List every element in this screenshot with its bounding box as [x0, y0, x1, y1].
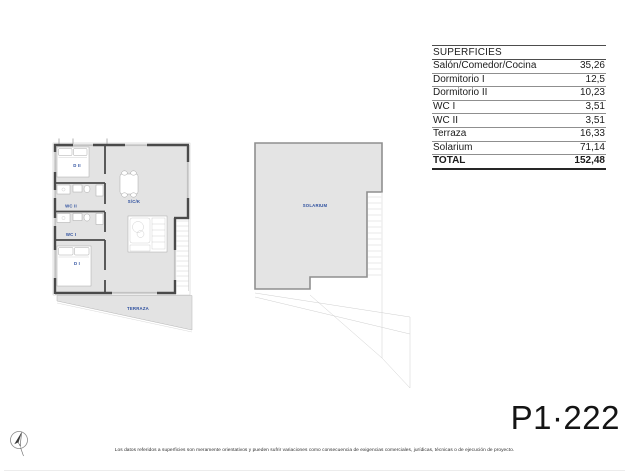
table-row: WC I 3,51 — [432, 101, 606, 115]
area-value: 3,51 — [586, 102, 605, 112]
toilet-wc2 — [84, 185, 90, 192]
table-row: WC II 3,51 — [432, 114, 606, 128]
footer-divider — [4, 470, 625, 471]
roof-stairs — [368, 197, 381, 275]
plan-code: P1·222 — [470, 400, 620, 436]
sink-wc2 — [73, 185, 82, 192]
table-row: Salón/Comedor/Cocina 35,26 — [432, 60, 606, 74]
kitchen-island — [128, 216, 167, 252]
room-label-d2: D II — [73, 163, 81, 168]
roof-plan: SOLARIUM — [248, 130, 415, 390]
floor-plan: D II WC II WC I D I S/C/K TERRAZA — [37, 130, 197, 335]
area-value: 16,33 — [580, 129, 605, 139]
room-label-wc1: WC I — [66, 232, 76, 237]
table-row: Dormitorio I 12,5 — [432, 74, 606, 88]
area-value: 10,23 — [580, 88, 605, 98]
footer-disclaimer: Los datos referidos a superficies son me… — [0, 448, 629, 453]
superficies-table: SUPERFICIES Salón/Comedor/Cocina 35,26 D… — [432, 45, 606, 170]
area-label: Solarium — [433, 143, 472, 153]
north-arrow-icon — [4, 427, 34, 461]
area-value: 35,26 — [580, 61, 605, 71]
plan-sheet: SUPERFICIES Salón/Comedor/Cocina 35,26 D… — [0, 0, 629, 476]
area-value: 12,5 — [586, 75, 605, 85]
table-header: SUPERFICIES — [432, 46, 606, 60]
room-label-solarium: SOLARIUM — [303, 203, 328, 208]
area-label: Salón/Comedor/Cocina — [433, 61, 536, 71]
sink-wc1 — [73, 214, 82, 221]
area-label: WC II — [433, 116, 458, 126]
area-value: 3,51 — [586, 116, 605, 126]
room-label-d1: D I — [74, 261, 80, 266]
room-label-wc2: WC II — [65, 204, 77, 209]
area-label: Terraza — [433, 129, 466, 139]
table-row: Solarium 71,14 — [432, 142, 606, 156]
exterior-stairs — [177, 221, 189, 286]
area-label: WC I — [433, 102, 455, 112]
solarium-floor — [255, 143, 382, 289]
room-label-sck: S/C/K — [128, 199, 141, 204]
shower-wc2 — [57, 185, 70, 194]
area-label: Dormitorio I — [433, 75, 485, 85]
table-total-row: TOTAL 152,48 — [432, 155, 606, 170]
table-row: Terraza 16,33 — [432, 128, 606, 142]
area-value: 71,14 — [580, 143, 605, 153]
terraza-floor — [57, 296, 192, 331]
dining-table — [120, 174, 138, 194]
total-value: 152,48 — [574, 156, 605, 166]
toilet-wc1 — [84, 214, 90, 221]
table-row: Dormitorio II 10,23 — [432, 87, 606, 101]
total-label: TOTAL — [433, 156, 465, 166]
area-label: Dormitorio II — [433, 88, 487, 98]
room-label-terraza: TERRAZA — [127, 306, 149, 311]
shower-wc1 — [57, 214, 70, 223]
